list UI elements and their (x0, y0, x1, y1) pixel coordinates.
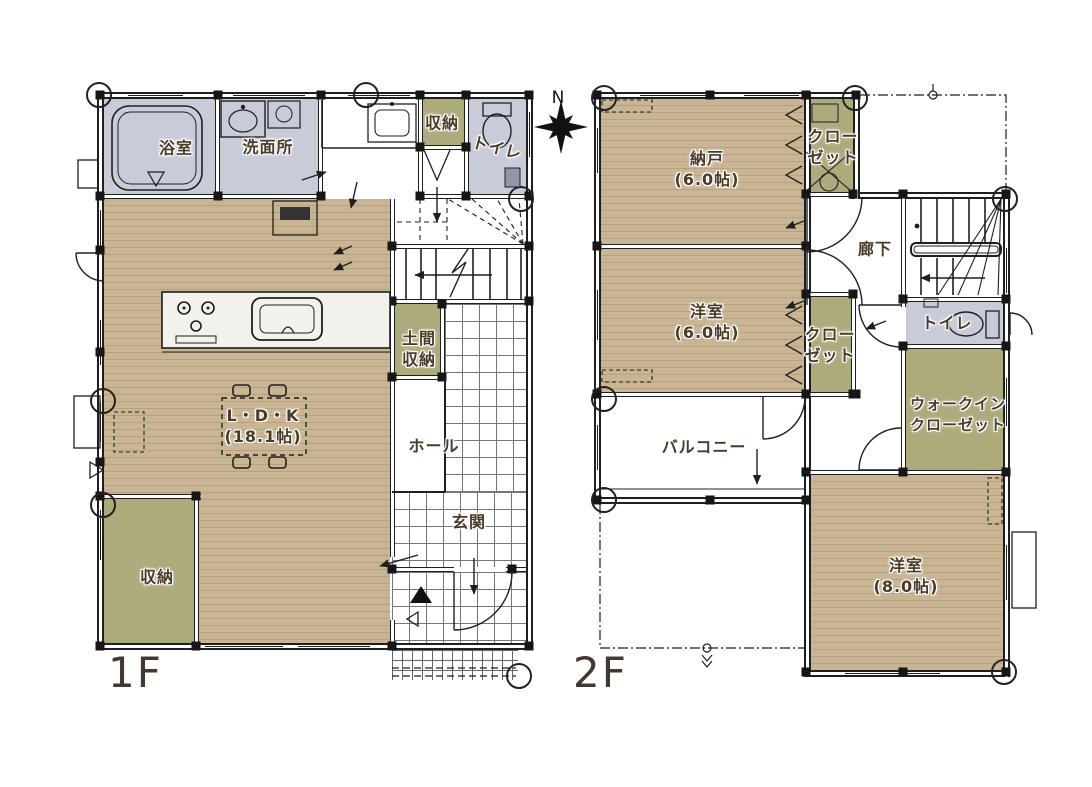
window-mark (845, 671, 940, 676)
pillar-post (438, 373, 447, 382)
hallway-label: 廊下 (858, 239, 892, 260)
pillar-post (899, 468, 908, 477)
pillar-post (317, 91, 326, 100)
pillar-circle-mark (90, 492, 116, 518)
wall-segment (194, 494, 199, 645)
pillar-post (525, 242, 534, 251)
pillar-post (416, 91, 425, 100)
window-mark (1004, 248, 1009, 293)
pillar-post (508, 565, 517, 574)
wall-segment (901, 192, 906, 307)
pillar-post (438, 300, 447, 309)
pillar-post (802, 390, 811, 399)
pillar-circle-mark (842, 85, 868, 111)
nando-label: 納戸 (6.0帖) (675, 148, 740, 190)
pillar-post (802, 242, 811, 251)
pillar-post (593, 242, 602, 251)
wall-segment (901, 345, 906, 473)
pillar-circle-mark (991, 659, 1017, 685)
wall-segment (594, 497, 811, 504)
pillar-post (416, 143, 425, 152)
genkan-label: 玄関 (452, 512, 486, 533)
pillar-post (802, 91, 811, 100)
window-mark (128, 93, 183, 98)
wall-segment (804, 92, 811, 677)
pillar-circle-mark (90, 388, 116, 414)
window-mark (744, 93, 799, 98)
pillar-post (802, 468, 811, 477)
pillar-post (96, 246, 105, 255)
pillar-post (706, 496, 715, 505)
pillar-circle-mark (591, 487, 617, 513)
pillar-post (96, 458, 105, 467)
window-mark (205, 644, 283, 649)
balcony-label: バルコニー (662, 437, 747, 458)
pillar-post (525, 297, 534, 306)
pillar-post (416, 192, 425, 201)
window-mark (1004, 545, 1009, 600)
wall-segment (597, 244, 807, 249)
wall-segment (392, 567, 454, 572)
pillar-circle-mark (506, 663, 532, 689)
wall-segment (526, 92, 533, 650)
window-mark (595, 290, 600, 340)
compass-star-icon (534, 100, 588, 154)
wall-segment (901, 297, 1008, 302)
storage-bottom-label: 収納 (140, 567, 174, 588)
washroom-label: 洗面所 (242, 137, 293, 158)
pillar-post (899, 668, 908, 677)
wall-segment (804, 192, 854, 197)
wall-segment (594, 92, 860, 99)
window-mark (640, 93, 708, 98)
floor2-label: 2F (573, 648, 628, 697)
pillar-post (525, 91, 534, 100)
north-label: N (552, 88, 565, 108)
bathroom-area (100, 99, 215, 194)
pillar-post (849, 390, 858, 399)
bathroom-label: 浴室 (159, 138, 193, 159)
pillar-circle-mark (992, 186, 1018, 212)
bedroom8-label: 洋室 (8.0帖) (874, 555, 939, 597)
pillar-post (462, 91, 471, 100)
pillar-post (849, 290, 858, 299)
pillar-circle-mark (591, 85, 617, 111)
stairs-2f (911, 197, 1001, 295)
pillar-post (388, 565, 397, 574)
wic-label: ウォークイン クローゼット (910, 394, 1006, 436)
window-mark (527, 112, 532, 157)
pillar-circle-mark (86, 82, 112, 108)
pillar-post (802, 190, 811, 199)
wall-segment (318, 92, 323, 197)
floor1-label: 1F (108, 648, 163, 697)
pillar-post (1002, 295, 1011, 304)
pillar-post (96, 642, 105, 651)
porch-area (392, 650, 518, 680)
closet-top-label: クロー ゼット (807, 126, 858, 168)
window-mark (595, 128, 600, 173)
pillar-post (214, 192, 223, 201)
pillar-post (192, 492, 201, 501)
wall-segment (97, 92, 104, 650)
pillar-post (1002, 342, 1011, 351)
wall-segment (392, 244, 533, 249)
pillar-post (192, 642, 201, 651)
pillar-post (96, 192, 105, 201)
pillar-circle-mark (508, 186, 534, 212)
window-mark (98, 320, 103, 365)
wall-segment (440, 302, 445, 380)
bedroom6-label: 洋室 (6.0帖) (675, 301, 740, 343)
pillar-post (388, 242, 397, 251)
ldk-label: L・D・K (18.1帖) (224, 405, 301, 447)
wall-segment (850, 192, 1010, 199)
pillar-post (802, 496, 811, 505)
window-mark (98, 210, 103, 250)
pillar-post (802, 290, 811, 299)
pillar-post (214, 91, 223, 100)
floorplan-canvas: N 浴室 洗面所 収納 トイレ 土間 収納 L・D・K (18.1帖) ホール … (0, 0, 1092, 787)
pillar-post (802, 668, 811, 677)
closet-mid-label: クロー ゼット (804, 324, 855, 366)
window-mark (233, 93, 305, 98)
storage-top-label: 収納 (425, 113, 459, 134)
wall-segment (97, 194, 323, 199)
wall-segment (392, 299, 533, 304)
pillar-post (899, 295, 908, 304)
pillar-post (388, 642, 397, 651)
pillar-post (96, 348, 105, 357)
wall-segment (215, 92, 220, 197)
window-mark (298, 644, 370, 649)
pillar-post (849, 190, 858, 199)
hall-label: ホール (408, 436, 459, 457)
pillar-post (388, 373, 397, 382)
pillar-post (899, 190, 908, 199)
pillar-post (317, 192, 326, 201)
pillar-post (525, 642, 534, 651)
doma-storage-label: 土間 収納 (402, 328, 436, 370)
window-mark (595, 425, 600, 470)
genkan-tile-area (445, 304, 526, 492)
pillar-post (899, 342, 908, 351)
pillar-post (1002, 468, 1011, 477)
pillar-post (388, 297, 397, 306)
pillar-post (706, 91, 715, 100)
wall-segment (597, 392, 857, 397)
stairs-1f (397, 199, 523, 299)
entry-tile-area (392, 572, 526, 643)
pillar-circle-mark (353, 82, 379, 108)
wall-segment (901, 344, 1008, 349)
toilet2-label: トイレ (921, 313, 972, 334)
pillar-circle-mark (591, 386, 617, 412)
pillar-post (462, 192, 471, 201)
